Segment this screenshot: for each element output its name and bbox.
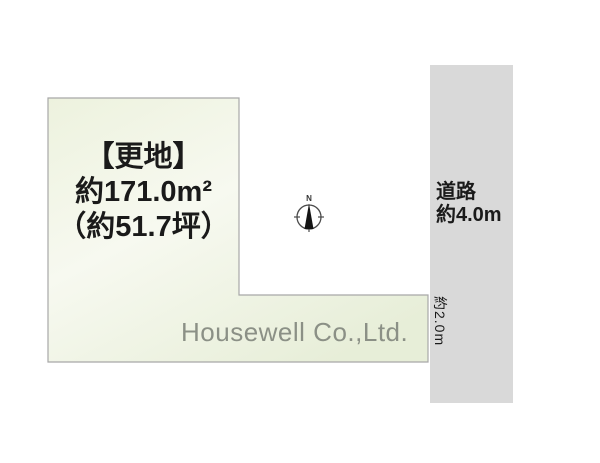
compass-north-needle xyxy=(305,204,314,230)
lot-area-label: 【更地】 約171.0m² （約51.7坪） xyxy=(48,140,239,245)
company-watermark: Housewell Co.,Ltd. xyxy=(181,317,408,348)
road-label: 道路 約4.0m xyxy=(436,181,502,227)
land-plot-diagram: N 【更地】 約171.0m² （約51.7坪） Housewell Co.,L… xyxy=(0,0,600,463)
compass-icon: N xyxy=(294,194,324,232)
frontage-width-label: 約2.0m xyxy=(430,296,450,346)
road-name-line: 道路 xyxy=(436,181,502,204)
road-width-line: 約4.0m xyxy=(436,204,502,227)
compass-north-label: N xyxy=(306,194,312,203)
lot-area-sqm-line: 約171.0m² xyxy=(48,175,239,210)
lot-area-tsubo-line: （約51.7坪） xyxy=(48,210,239,245)
lot-status-line: 【更地】 xyxy=(48,140,239,175)
road-strip xyxy=(430,65,513,403)
